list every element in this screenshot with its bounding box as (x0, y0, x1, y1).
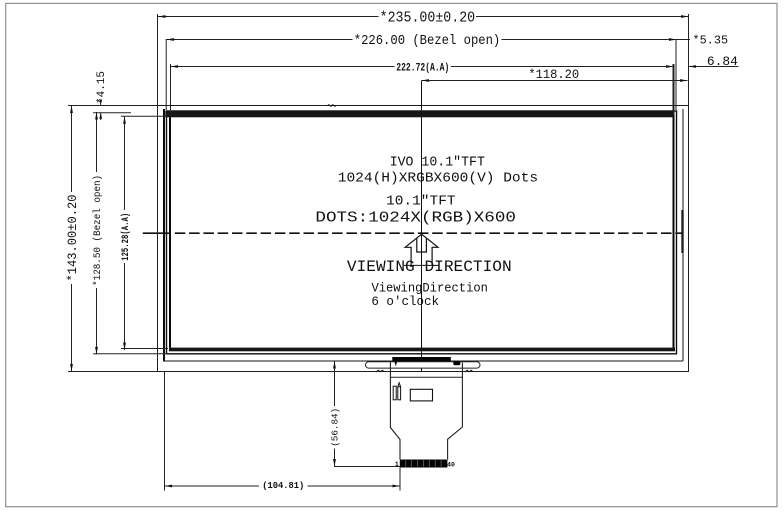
svg-text:222.72(A.A): 222.72(A.A) (396, 62, 449, 74)
svg-text:40: 40 (447, 462, 455, 469)
svg-text:(104.81): (104.81) (262, 480, 304, 491)
svg-text:*5.35: *5.35 (693, 34, 729, 48)
svg-text:*128.50 (Bezel open): *128.50 (Bezel open) (92, 175, 104, 286)
svg-text:*118.20: *118.20 (528, 68, 579, 82)
svg-text:125.28(A.A): 125.28(A.A) (120, 213, 132, 261)
svg-text:IVO 10.1"TFT: IVO 10.1"TFT (390, 156, 485, 171)
svg-text:6.84: 6.84 (707, 55, 738, 69)
svg-text:*226.00 (Bezel open): *226.00 (Bezel open) (354, 33, 501, 49)
svg-text:*4.15: *4.15 (96, 71, 108, 104)
svg-text:(56.84): (56.84) (329, 408, 340, 447)
svg-text:DOTS:1024X(RGB)X600: DOTS:1024X(RGB)X600 (315, 210, 516, 227)
svg-text:1024(H)XRGBX600(V) Dots: 1024(H)XRGBX600(V) Dots (338, 171, 538, 187)
svg-text:10.1"TFT: 10.1"TFT (386, 194, 456, 210)
svg-text:*235.00±0.20: *235.00±0.20 (380, 9, 476, 26)
svg-text:*143.00±0.20: *143.00±0.20 (65, 195, 80, 282)
svg-text:1: 1 (395, 461, 399, 468)
svg-text:VIEWING DIRECTION: VIEWING DIRECTION (347, 258, 512, 276)
svg-text:6 o'clock: 6 o'clock (371, 294, 439, 309)
